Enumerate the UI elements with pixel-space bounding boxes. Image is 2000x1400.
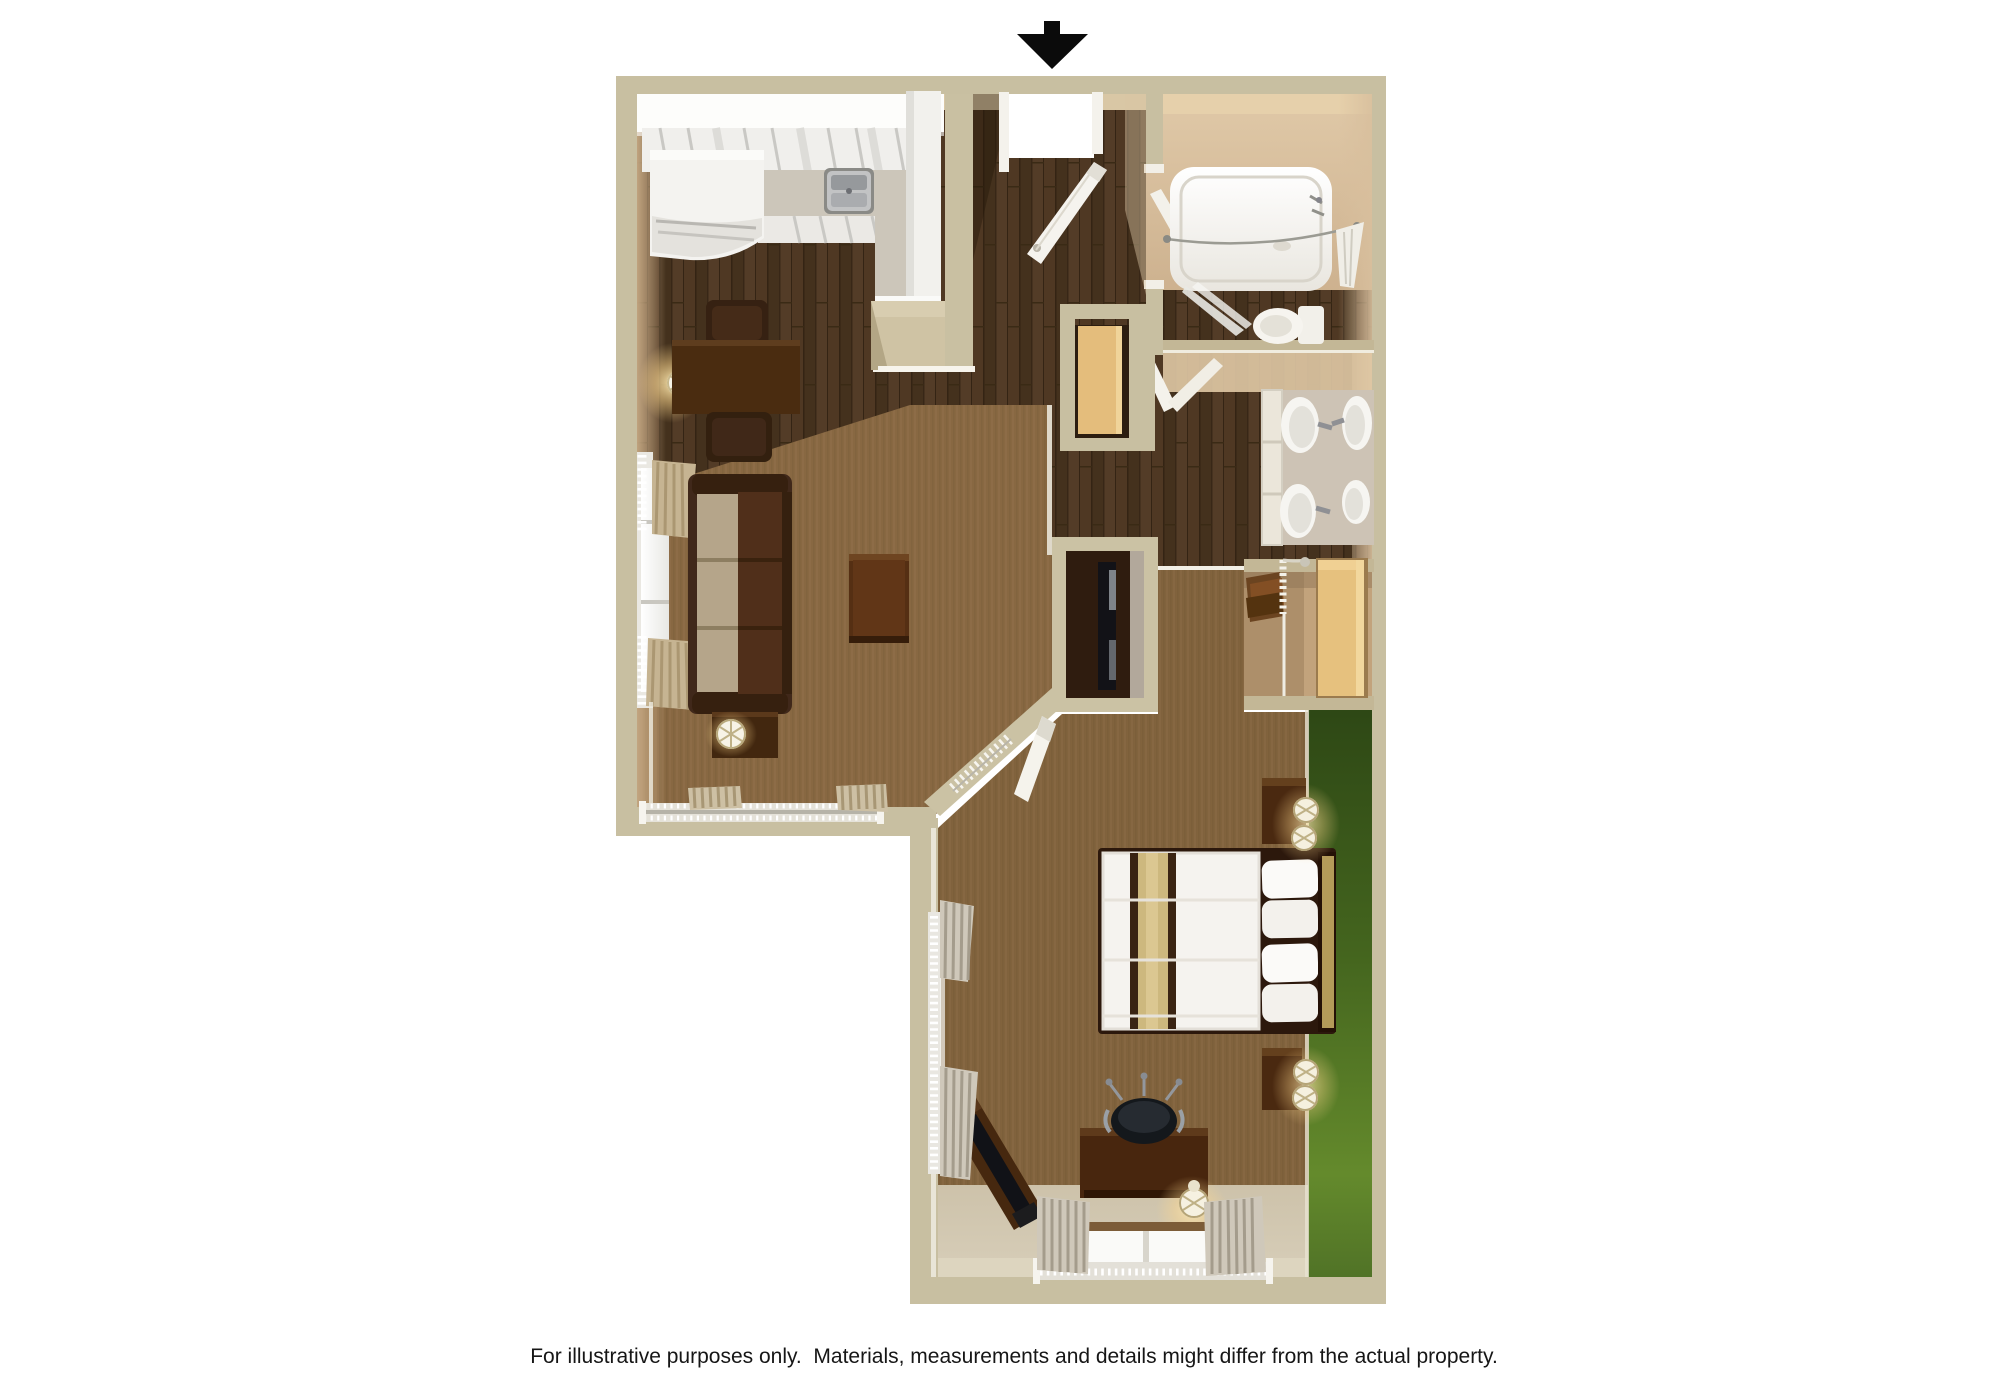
svg-text:For illustrative purposes only: For illustrative purposes only. Material… (530, 1345, 1498, 1368)
